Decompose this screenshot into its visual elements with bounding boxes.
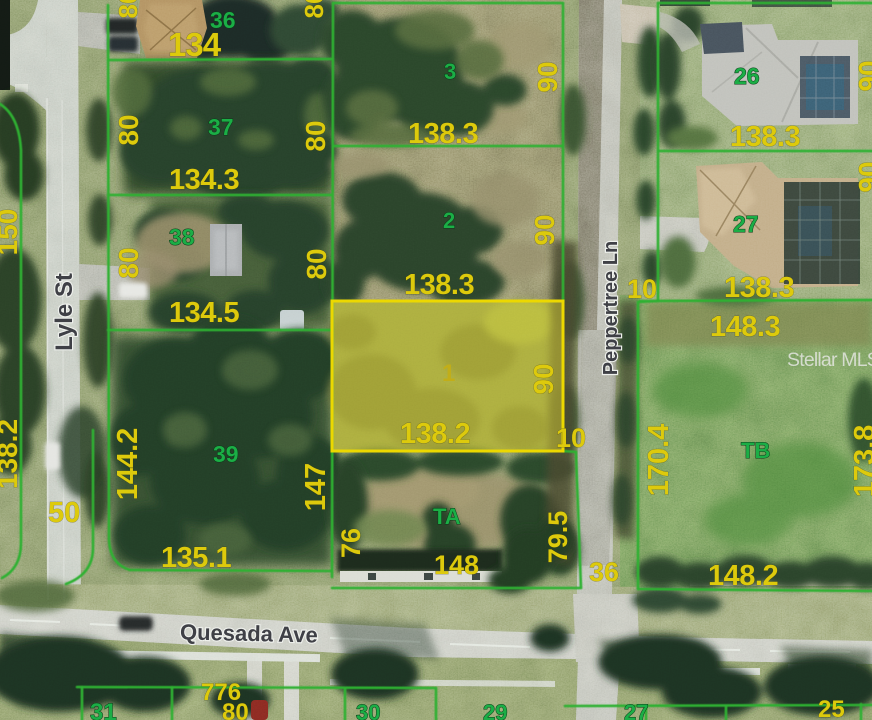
svg-text:147: 147 bbox=[300, 463, 332, 511]
svg-text:39: 39 bbox=[213, 441, 239, 467]
svg-text:3: 3 bbox=[444, 59, 456, 84]
svg-text:148.3: 148.3 bbox=[710, 311, 780, 343]
svg-text:37: 37 bbox=[208, 114, 234, 140]
svg-text:134: 134 bbox=[168, 26, 222, 63]
svg-text:90: 90 bbox=[853, 161, 872, 192]
svg-text:TB: TB bbox=[741, 438, 770, 463]
svg-text:27: 27 bbox=[624, 700, 648, 720]
svg-text:90: 90 bbox=[528, 363, 559, 394]
svg-text:10: 10 bbox=[627, 274, 657, 304]
svg-text:80: 80 bbox=[113, 247, 144, 278]
svg-text:90: 90 bbox=[853, 60, 872, 91]
svg-text:79.5: 79.5 bbox=[543, 511, 573, 564]
svg-text:30: 30 bbox=[356, 700, 380, 720]
svg-text:31: 31 bbox=[90, 699, 117, 720]
svg-text:134.3: 134.3 bbox=[169, 164, 239, 196]
svg-text:80: 80 bbox=[222, 699, 249, 720]
svg-text:Stellar MLS: Stellar MLS bbox=[787, 349, 872, 371]
svg-text:135.1: 135.1 bbox=[161, 542, 231, 574]
svg-text:Peppertree Ln: Peppertree Ln bbox=[600, 241, 622, 375]
svg-text:76: 76 bbox=[336, 528, 366, 558]
svg-text:90: 90 bbox=[529, 214, 560, 245]
svg-text:50: 50 bbox=[48, 497, 80, 529]
svg-text:138.3: 138.3 bbox=[404, 269, 474, 301]
svg-text:138.3: 138.3 bbox=[408, 118, 478, 150]
svg-text:148: 148 bbox=[434, 550, 479, 580]
svg-text:134.5: 134.5 bbox=[169, 297, 239, 329]
svg-text:173.8: 173.8 bbox=[849, 425, 872, 498]
svg-text:36: 36 bbox=[589, 557, 619, 587]
svg-text:144.2: 144.2 bbox=[112, 428, 144, 501]
svg-text:170.4: 170.4 bbox=[643, 424, 675, 497]
svg-text:10: 10 bbox=[556, 423, 586, 453]
svg-text:TA: TA bbox=[433, 504, 461, 529]
svg-text:29: 29 bbox=[483, 700, 507, 720]
svg-text:2: 2 bbox=[443, 208, 455, 233]
svg-text:138.2: 138.2 bbox=[0, 419, 23, 489]
svg-text:38: 38 bbox=[169, 224, 195, 250]
svg-text:138.3: 138.3 bbox=[724, 272, 794, 304]
svg-text:148.2: 148.2 bbox=[708, 560, 778, 592]
svg-text:Quesada Ave: Quesada Ave bbox=[180, 619, 318, 647]
svg-text:80: 80 bbox=[113, 0, 143, 18]
svg-text:150: 150 bbox=[0, 209, 23, 256]
svg-text:1: 1 bbox=[442, 360, 455, 387]
svg-text:80: 80 bbox=[300, 120, 331, 151]
svg-text:90: 90 bbox=[532, 61, 563, 92]
svg-text:80: 80 bbox=[299, 0, 329, 18]
svg-text:80: 80 bbox=[113, 114, 144, 145]
svg-text:138.2: 138.2 bbox=[400, 418, 470, 450]
svg-text:25: 25 bbox=[818, 696, 845, 720]
svg-text:Lyle St: Lyle St bbox=[51, 273, 78, 351]
svg-text:80: 80 bbox=[301, 248, 332, 279]
svg-text:138.3: 138.3 bbox=[730, 121, 800, 153]
svg-text:26: 26 bbox=[734, 63, 760, 89]
svg-text:27: 27 bbox=[733, 211, 759, 237]
